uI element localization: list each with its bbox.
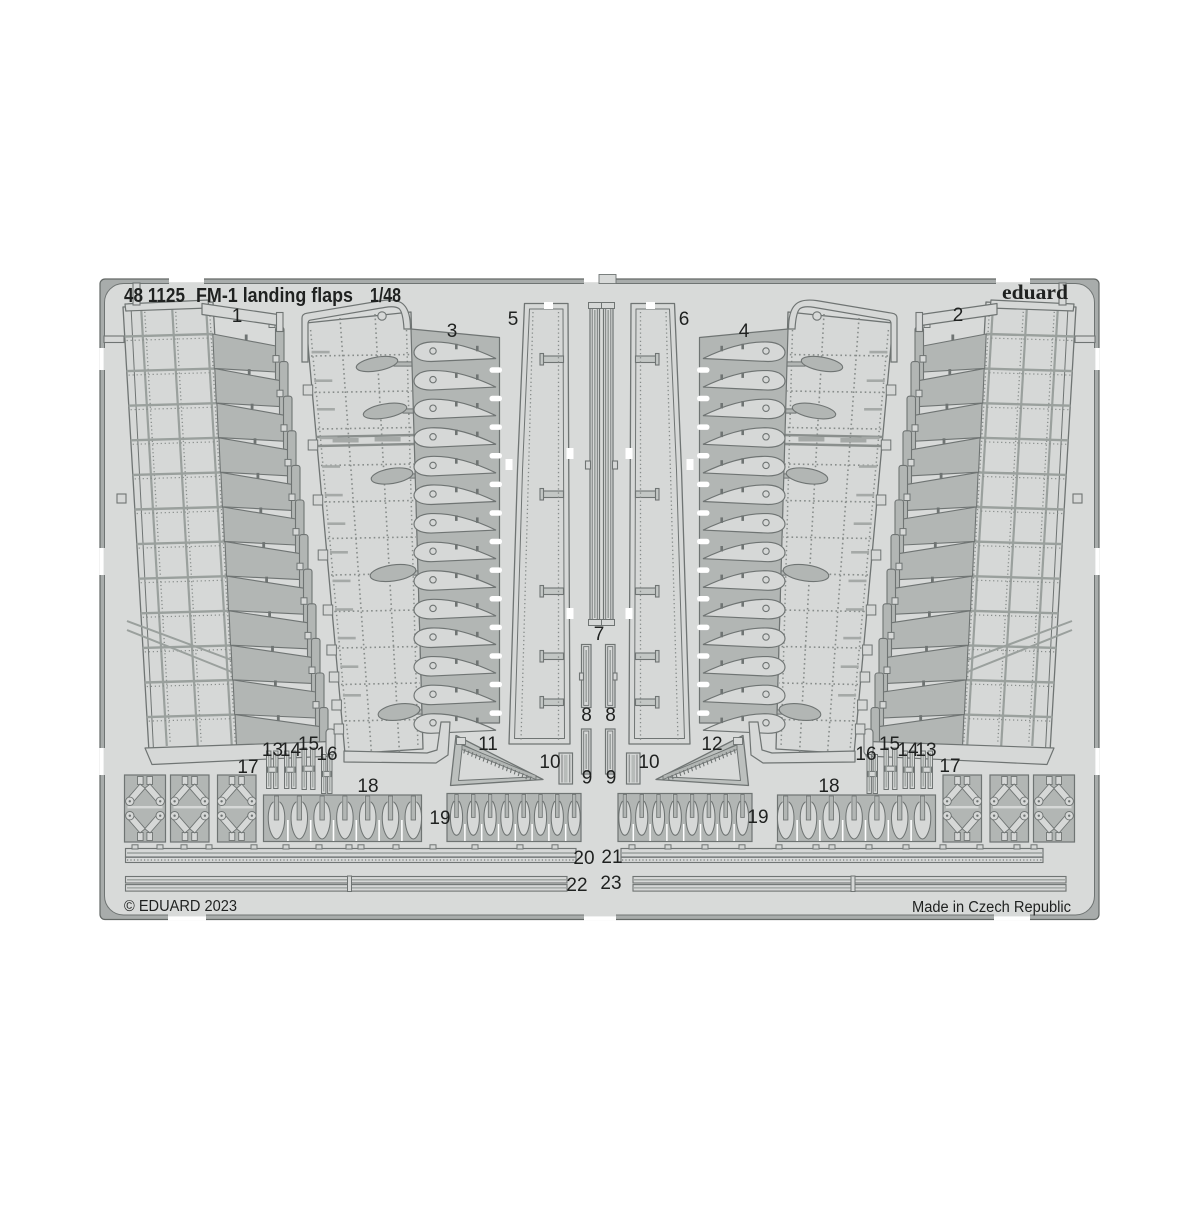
svg-text:11: 11 — [478, 734, 498, 755]
svg-text:18: 18 — [818, 776, 839, 797]
svg-text:1: 1 — [232, 306, 243, 327]
svg-text:2: 2 — [953, 305, 964, 326]
svg-text:20: 20 — [573, 848, 594, 869]
svg-text:10: 10 — [539, 752, 560, 773]
svg-text:15: 15 — [879, 734, 900, 755]
svg-text:16: 16 — [316, 744, 337, 765]
svg-text:9: 9 — [606, 768, 617, 789]
svg-text:4: 4 — [739, 321, 750, 342]
svg-text:17: 17 — [237, 757, 258, 778]
svg-text:23: 23 — [600, 873, 621, 894]
svg-text:Made in Czech Republic: Made in Czech Republic — [912, 899, 1071, 916]
svg-text:9: 9 — [582, 768, 593, 789]
svg-text:21: 21 — [601, 847, 622, 868]
svg-text:48 1125: 48 1125 — [124, 285, 185, 307]
svg-text:© EDUARD 2023: © EDUARD 2023 — [124, 898, 237, 915]
svg-text:19: 19 — [429, 808, 450, 829]
svg-text:8: 8 — [605, 705, 616, 726]
svg-text:3: 3 — [447, 321, 458, 342]
svg-text:19: 19 — [747, 807, 768, 828]
svg-text:17: 17 — [939, 756, 960, 777]
svg-text:18: 18 — [357, 776, 378, 797]
svg-text:12: 12 — [701, 734, 722, 755]
svg-text:7: 7 — [594, 624, 605, 645]
svg-text:eduard: eduard — [1002, 280, 1068, 304]
svg-text:22: 22 — [566, 875, 587, 896]
svg-text:6: 6 — [679, 309, 690, 330]
svg-text:1/48: 1/48 — [370, 285, 401, 307]
svg-text:16: 16 — [855, 744, 876, 765]
svg-text:8: 8 — [581, 705, 592, 726]
svg-text:14: 14 — [897, 740, 919, 761]
svg-text:13: 13 — [915, 740, 936, 761]
svg-text:5: 5 — [508, 309, 519, 330]
svg-text:10: 10 — [638, 752, 659, 773]
svg-text:FM-1 landing flaps: FM-1 landing flaps — [196, 285, 353, 307]
